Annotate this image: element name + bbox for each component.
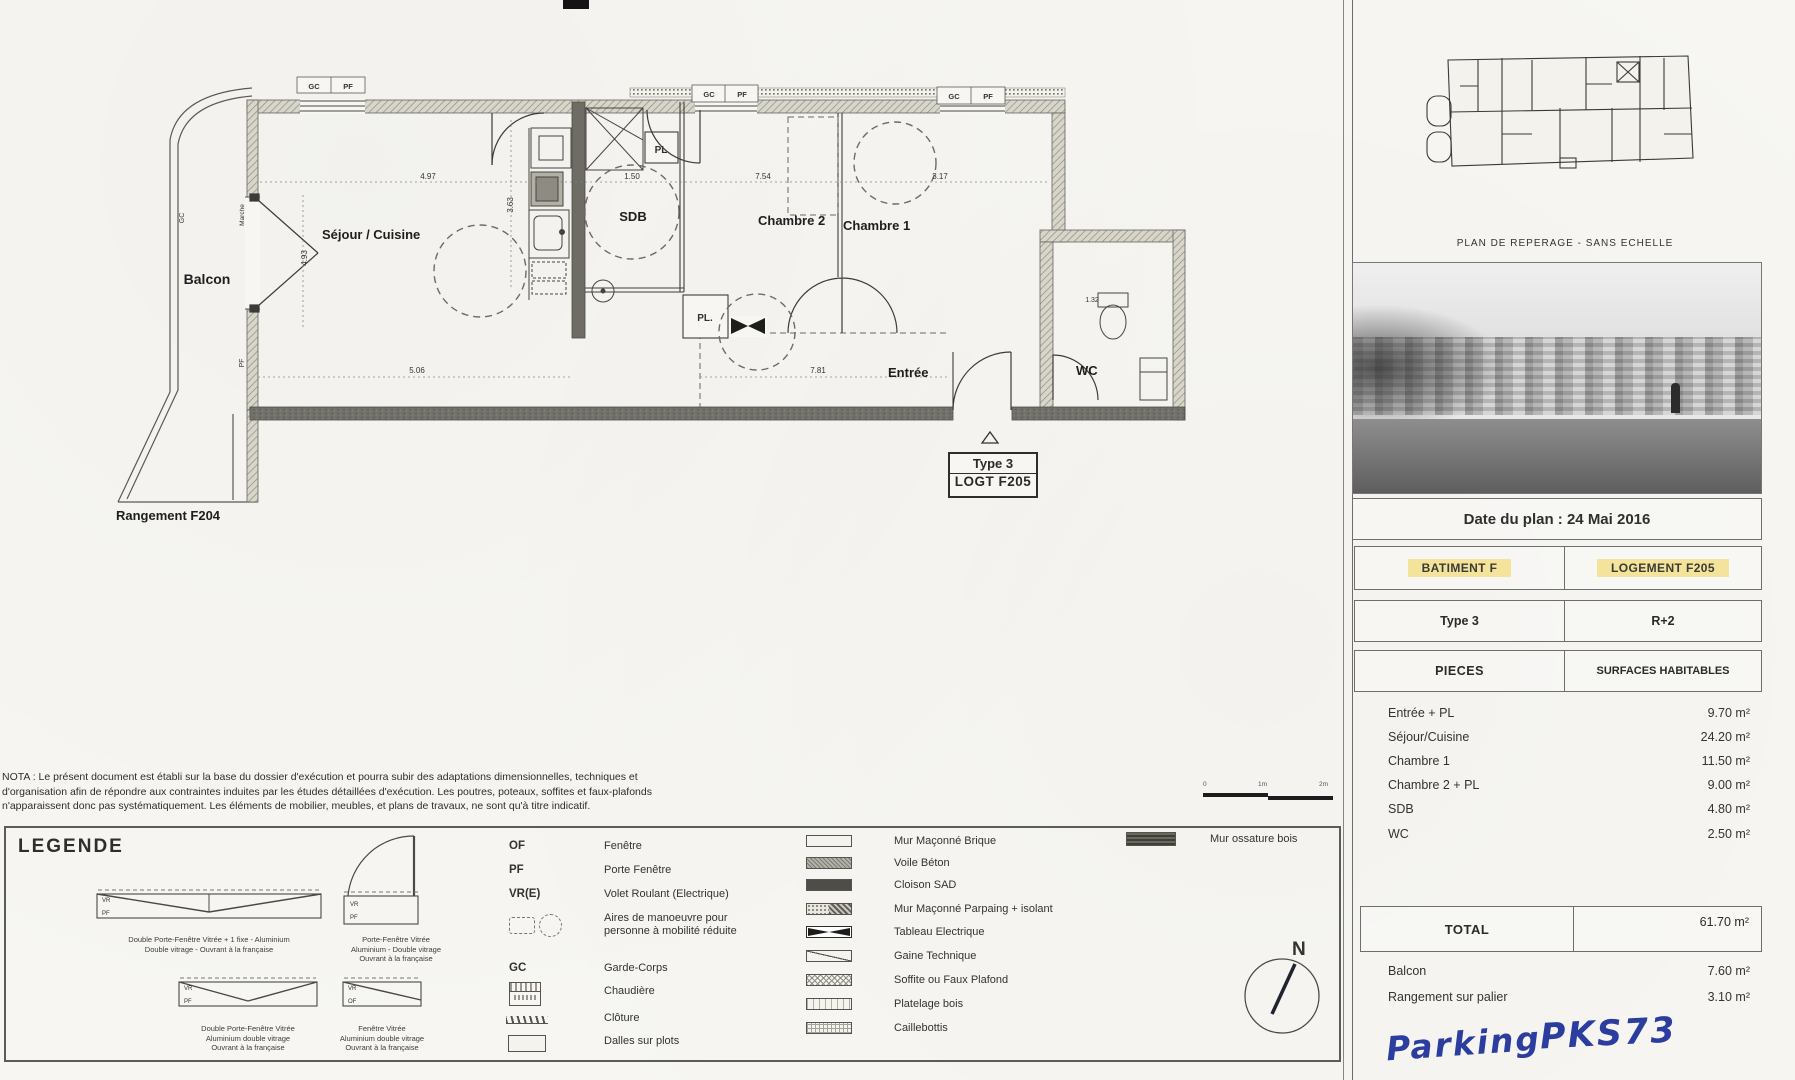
svg-text:GC: GC bbox=[308, 82, 320, 91]
window-caption: Porte-Fenêtre Vitrée Aluminium - Double … bbox=[336, 935, 456, 964]
svg-text:4.97: 4.97 bbox=[420, 172, 436, 181]
scale-tick-0: 0 bbox=[1203, 781, 1207, 788]
legend-title: LEGENDE bbox=[18, 836, 124, 858]
surface-row: Entrée + PL9.70 m² bbox=[1388, 706, 1750, 720]
svg-text:5.06: 5.06 bbox=[409, 366, 425, 375]
dashed-partitions bbox=[700, 117, 950, 407]
room-label-entree: Entrée bbox=[888, 365, 928, 380]
legend-label-cloture: Clôture bbox=[604, 1012, 639, 1024]
material-label: Tableau Electrique bbox=[894, 926, 985, 938]
svg-text:VR: VR bbox=[348, 986, 357, 992]
bottom-structural-wall bbox=[250, 407, 1185, 420]
swatch-brique bbox=[806, 835, 852, 847]
svg-text:VR: VR bbox=[350, 902, 359, 908]
total-value: 61.70 m² bbox=[1573, 907, 1761, 951]
window-caption: Double Porte-Fenêtre Vitrée + 1 fixe - A… bbox=[102, 935, 316, 954]
scale-tick-1m: 1m bbox=[1258, 781, 1267, 788]
legend-label-garde-corps: Garde-Corps bbox=[604, 962, 668, 974]
chaudiere-symbol bbox=[509, 982, 541, 1006]
scale-bar: 0 1m 2m bbox=[1203, 781, 1333, 807]
room-label-rangement: Rangement F204 bbox=[116, 508, 220, 523]
material-label: Caillebottis bbox=[894, 1022, 948, 1034]
total-label: TOTAL bbox=[1361, 907, 1573, 951]
balcony-outline bbox=[118, 88, 258, 502]
surface-row: Chambre 2 + PL9.00 m² bbox=[1388, 778, 1750, 792]
svg-text:PF: PF bbox=[102, 911, 110, 917]
svg-text:3.63: 3.63 bbox=[506, 197, 515, 213]
window-symbol-double-pf: VR PF bbox=[176, 970, 320, 1020]
legend-label-porte-fenetre: Porte Fenêtre bbox=[604, 864, 671, 876]
swatch-caillebottis bbox=[806, 1022, 852, 1034]
window-symbol-pf-arc: VR PF bbox=[340, 834, 424, 930]
key-plan-drawing bbox=[1415, 38, 1715, 178]
svg-text:OF: OF bbox=[348, 999, 357, 1005]
key-plan-caption: PLAN DE REPERAGE - SANS ECHELLE bbox=[1405, 238, 1725, 249]
pmr-symbol bbox=[509, 914, 567, 936]
swatch-soffite bbox=[806, 974, 852, 986]
room-label-chambre1: Chambre 1 bbox=[843, 218, 910, 233]
surface-row: SDB4.80 m² bbox=[1388, 802, 1750, 816]
svg-text:PF: PF bbox=[737, 90, 747, 99]
svg-text:GC: GC bbox=[179, 213, 186, 224]
svg-text:VR: VR bbox=[184, 986, 193, 992]
legend-label-chaudiere: Chaudière bbox=[604, 985, 655, 997]
svg-text:N: N bbox=[1292, 939, 1306, 960]
legend-label-dalles: Dalles sur plots bbox=[604, 1035, 679, 1047]
handwritten-parking: Parking bbox=[1385, 1019, 1542, 1069]
material-label: Cloison SAD bbox=[894, 879, 956, 891]
surface-row: Chambre 111.50 m² bbox=[1388, 754, 1750, 768]
svg-text:GC: GC bbox=[948, 92, 960, 101]
col-surfaces: SURFACES HABITABLES bbox=[1564, 651, 1761, 691]
cloture-symbol bbox=[506, 1016, 548, 1024]
electrical-panel bbox=[729, 316, 767, 337]
svg-text:PL.: PL. bbox=[697, 313, 713, 324]
annex-row: Balcon7.60 m² bbox=[1388, 964, 1750, 978]
legend-label-fenetre: Fenêtre bbox=[604, 840, 642, 852]
room-label-balcon: Balcon bbox=[170, 271, 244, 287]
wc-fixtures bbox=[1098, 293, 1167, 400]
photo-ground bbox=[1353, 419, 1761, 493]
svg-text:PF: PF bbox=[343, 82, 353, 91]
legend-label-pmr: Aires de manoeuvre pour personne à mobil… bbox=[604, 912, 772, 938]
material-label: Soffite ou Faux Plafond bbox=[894, 974, 1008, 986]
room-label-sejour: Séjour / Cuisine bbox=[322, 227, 420, 242]
swatch-cloison-sad bbox=[806, 879, 852, 891]
niveau-cell: R+2 bbox=[1564, 601, 1761, 641]
legend-code-pf: PF bbox=[509, 864, 524, 876]
svg-text:1.32: 1.32 bbox=[1085, 297, 1099, 304]
material-label-ossature: Mur ossature bois bbox=[1210, 833, 1297, 845]
legend-code-vre: VR(E) bbox=[509, 888, 540, 900]
surface-row: WC2.50 m² bbox=[1388, 827, 1750, 841]
panel-separator bbox=[1343, 0, 1353, 1080]
svg-text:7.81: 7.81 bbox=[810, 366, 826, 375]
svg-text:VR: VR bbox=[102, 898, 111, 904]
photo-person bbox=[1671, 383, 1680, 413]
material-label: Gaine Technique bbox=[894, 950, 976, 962]
plan-sheet: GCPF GCPF GCPF bbox=[0, 0, 1795, 1080]
svg-text:3.17: 3.17 bbox=[932, 172, 948, 181]
svg-text:Marche: Marche bbox=[239, 204, 246, 226]
unit-type: Type 3 bbox=[950, 454, 1036, 471]
bathroom-fixtures bbox=[586, 108, 643, 302]
svg-text:7.54: 7.54 bbox=[755, 172, 771, 181]
svg-text:GC: GC bbox=[703, 90, 715, 99]
table-header-row: PIECES SURFACES HABITABLES bbox=[1354, 650, 1762, 692]
swatch-platelage bbox=[806, 998, 852, 1010]
handwritten-parking-number: PKS73 bbox=[1539, 1010, 1678, 1057]
material-label: Platelage bois bbox=[894, 998, 963, 1010]
batiment-row: BATIMENT F LOGEMENT F205 bbox=[1354, 546, 1762, 590]
nota-paragraph: NOTA : Le présent document est établi su… bbox=[2, 770, 902, 814]
logement-badge: LOGEMENT F205 bbox=[1597, 559, 1729, 577]
scale-tick-2m: 2m bbox=[1319, 781, 1328, 788]
material-label: Mur Maçonné Parpaing + isolant bbox=[894, 903, 1053, 915]
date-text: Date du plan : 24 Mai 2016 bbox=[1464, 511, 1651, 528]
type-cell: Type 3 bbox=[1355, 601, 1564, 641]
swatch-ossature-bois bbox=[1126, 832, 1176, 846]
room-label-sdb: SDB bbox=[610, 209, 656, 224]
dalles-symbol bbox=[508, 1035, 546, 1052]
unit-number: LOGT F205 bbox=[950, 474, 1036, 489]
entrance-triangle bbox=[982, 432, 998, 443]
svg-text:1.50: 1.50 bbox=[624, 172, 640, 181]
svg-text:PF: PF bbox=[350, 915, 358, 921]
legend-code-gc: GC bbox=[509, 962, 526, 974]
site-photo bbox=[1352, 262, 1762, 494]
room-label-wc: WC bbox=[1076, 363, 1098, 378]
legend-label-volet: Volet Roulant (Electrique) bbox=[604, 888, 729, 900]
material-label: Voile Béton bbox=[894, 857, 950, 869]
total-box: TOTAL 61.70 m² bbox=[1360, 906, 1762, 952]
svg-text:PF: PF bbox=[184, 999, 192, 1005]
legend-code-of: OF bbox=[509, 840, 525, 852]
room-label-chambre2: Chambre 2 bbox=[758, 213, 825, 228]
photo-trees bbox=[1352, 304, 1507, 431]
date-box: Date du plan : 24 Mai 2016 bbox=[1352, 498, 1762, 540]
svg-text:PF: PF bbox=[239, 359, 246, 368]
unit-tag-box: Type 3 LOGT F205 bbox=[948, 452, 1038, 498]
dimension-texts: 4.97 1.50 7.54 3.17 5.06 7.81 1.32 4.93 … bbox=[300, 172, 1099, 375]
window-symbol-fenetre: VR OF bbox=[340, 970, 424, 1020]
swatch-parpaing bbox=[806, 903, 852, 915]
legend-box: LEGENDE VR PF Double Porte-Fenêtre Vitré… bbox=[4, 826, 1341, 1062]
window-caption: Fenêtre Vitrée Aluminium double vitrage … bbox=[322, 1024, 442, 1053]
kitchen-fixtures bbox=[529, 128, 571, 300]
material-label: Mur Maçonné Brique bbox=[894, 835, 996, 847]
svg-text:PF: PF bbox=[983, 92, 993, 101]
swatch-tableau-electrique bbox=[806, 926, 852, 938]
svg-text:4.93: 4.93 bbox=[300, 250, 309, 266]
window-symbol-double-pf-fixe: VR PF bbox=[94, 880, 324, 932]
type-row: Type 3 R+2 bbox=[1354, 600, 1762, 642]
swatch-voile-beton bbox=[806, 857, 852, 869]
swatch-gaine bbox=[806, 950, 852, 962]
interior-dark-wall bbox=[572, 102, 585, 338]
closet-pl-top: PL bbox=[645, 132, 678, 163]
closet-pl-bottom: PL. bbox=[683, 295, 728, 338]
partitions bbox=[585, 102, 953, 407]
surface-row: Séjour/Cuisine24.20 m² bbox=[1388, 730, 1750, 744]
compass-north: N bbox=[1235, 925, 1335, 1037]
window-caption: Double Porte-Fenêtre Vitrée Aluminium do… bbox=[158, 1024, 338, 1053]
col-pieces: PIECES bbox=[1355, 651, 1564, 691]
annex-row: Rangement sur palier3.10 m² bbox=[1388, 990, 1750, 1004]
balcony-door-opening bbox=[245, 197, 260, 309]
batiment-badge: BATIMENT F bbox=[1408, 559, 1512, 577]
